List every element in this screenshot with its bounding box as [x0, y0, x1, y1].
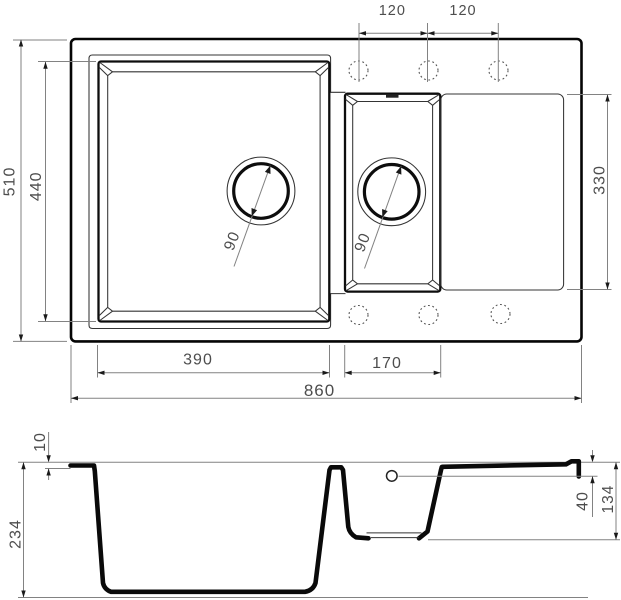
svg-text:860: 860 [304, 381, 335, 400]
svg-text:440: 440 [28, 171, 45, 201]
svg-text:330: 330 [591, 165, 608, 195]
svg-text:510: 510 [1, 167, 18, 197]
svg-text:120: 120 [449, 3, 476, 19]
svg-text:170: 170 [372, 355, 402, 372]
svg-text:390: 390 [183, 351, 213, 368]
svg-text:10: 10 [32, 432, 49, 452]
svg-text:40: 40 [574, 491, 591, 511]
svg-text:234: 234 [7, 519, 24, 549]
svg-text:134: 134 [600, 485, 617, 514]
svg-text:120: 120 [379, 3, 406, 19]
